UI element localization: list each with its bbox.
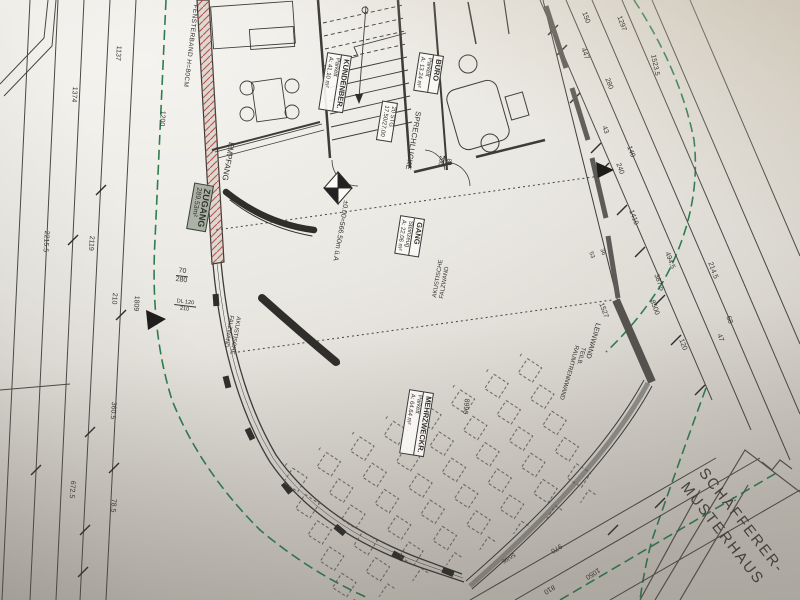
chair-grid	[270, 344, 610, 600]
partition-tracks	[216, 176, 612, 352]
dimension-label: 2119	[87, 236, 95, 252]
dimension-label: 1200	[158, 111, 166, 127]
floor-plan-photo: ZUGANG 289.53m² KUNDENBER. Parkett A: 41…	[0, 0, 800, 600]
floor-plan-drawing	[0, 0, 800, 600]
door-size-dl: DL 120 210	[173, 298, 196, 314]
door-size-sprechlucke: 80 200	[436, 155, 452, 168]
dimension-label: 1374	[70, 87, 78, 103]
level-marker	[324, 172, 352, 204]
furniture-buero	[444, 55, 528, 152]
dimension-label: 210	[110, 293, 118, 305]
dimension-label: 1137	[114, 46, 122, 62]
door-height: 280	[175, 276, 188, 285]
door-arcs	[332, 150, 470, 186]
door-width: 80	[443, 156, 452, 168]
reception-counter	[226, 192, 314, 236]
interior-walls	[212, 0, 545, 172]
dimension-label: 360.5	[109, 402, 117, 420]
door-size-zugang: 70 280	[175, 267, 189, 285]
dimension-label: 78.5	[109, 499, 117, 513]
acoustic-folding-wall	[262, 298, 338, 363]
furniture-reception	[211, 1, 299, 122]
dimension-label: 672.5	[68, 481, 76, 499]
dimension-label: 1809	[132, 296, 140, 312]
dimension-label: 2215.5	[42, 231, 50, 253]
